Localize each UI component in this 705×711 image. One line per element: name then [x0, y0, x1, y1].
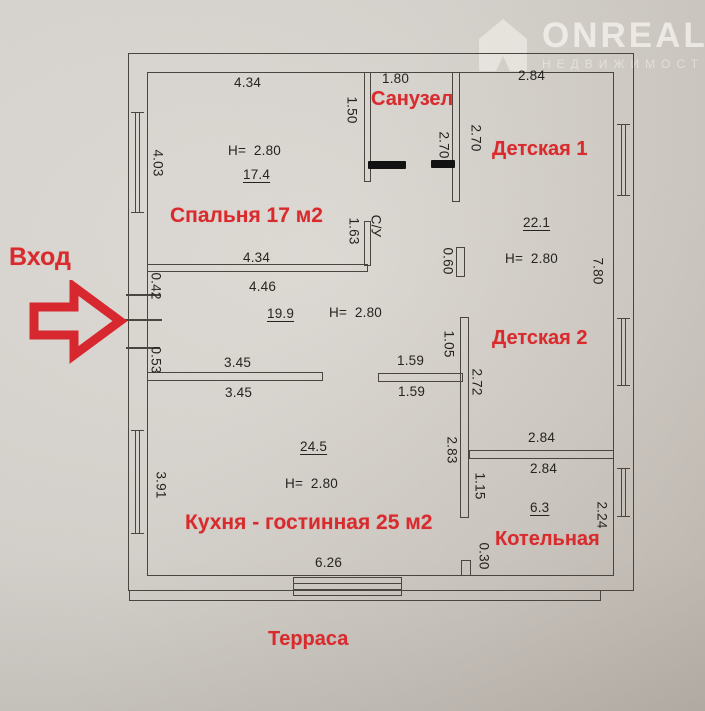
dim-label: 3.91	[154, 471, 169, 498]
dim-label: 0.42	[149, 272, 164, 299]
dim-label: 4.34	[234, 75, 261, 90]
dim-label: 2.70	[437, 131, 452, 158]
room-label-kitchen: Кухня - гостинная 25 м2	[185, 511, 432, 535]
dim-label: 1.80	[382, 71, 409, 86]
dim-label: 2.24	[595, 501, 610, 528]
watermark-brand: ONREALT	[542, 18, 705, 53]
entrance-label: Вход	[9, 243, 71, 272]
wall-kids2-west	[460, 317, 469, 518]
window-kitchen-left	[131, 430, 144, 534]
room-label-kids1: Детская 1	[492, 138, 588, 161]
height-label-kitchen: H= 2.80	[285, 476, 338, 491]
dim-label: 4.46	[249, 279, 276, 294]
dim-label: 0.53	[149, 346, 164, 373]
wall-bedroom-south	[147, 264, 368, 272]
door-mark-left	[368, 161, 406, 169]
area-label-hall: 19.9	[267, 306, 294, 321]
dim-label: 2.84	[528, 430, 555, 445]
dim-label: 2.70	[469, 124, 484, 151]
wall-boiler-north	[469, 450, 614, 459]
dim-label: 1.50	[345, 96, 360, 123]
wall-kitchen-north-left	[147, 372, 323, 381]
wall-stub-060	[456, 247, 465, 277]
dim-label: 0.30	[477, 542, 492, 569]
dim-label: 2.72	[470, 368, 485, 395]
room-label-bedroom: Спальня 17 м2	[170, 204, 323, 228]
dim-label: 7.80	[591, 257, 606, 284]
dim-label: 0.60	[441, 247, 456, 274]
wall-kitchen-north-right	[378, 373, 463, 382]
floorplan-photo: ONREALT НЕДВИЖИМОСТЬ Санузел Детская 1 С…	[0, 0, 705, 711]
area-label-kitchen: 24.5	[300, 439, 327, 454]
area-label-kids1: 22.1	[523, 215, 550, 230]
dim-label: 2.84	[530, 461, 557, 476]
window-kids2-right	[617, 318, 630, 386]
room-label-boiler: Котельная	[495, 528, 600, 551]
dim-label: 4.03	[151, 149, 166, 176]
height-label-hall: H= 2.80	[329, 305, 382, 320]
door-mark-right	[431, 160, 455, 168]
window-boiler-right	[617, 468, 630, 517]
height-label-bedroom: H= 2.80	[228, 143, 281, 158]
su-abbrev-label: С/У	[369, 215, 384, 238]
height-label-kids1: H= 2.80	[505, 251, 558, 266]
dim-label: 3.45	[225, 385, 252, 400]
dim-label: 1.63	[347, 217, 362, 244]
dim-label: 1.59	[398, 384, 425, 399]
terrace-door-window	[293, 577, 402, 596]
dim-label: 1.15	[473, 472, 488, 499]
room-label-bathroom: Санузел	[371, 88, 453, 111]
window-kids1-right	[617, 124, 630, 196]
dim-label: 3.45	[224, 355, 251, 370]
room-label-terrace: Терраса	[268, 628, 348, 651]
dim-label: 2.84	[518, 68, 545, 83]
room-label-kids2: Детская 2	[492, 327, 588, 350]
window-bedroom-left	[131, 112, 144, 213]
entrance-arrow-icon	[28, 280, 128, 364]
dim-label: 2.83	[445, 436, 460, 463]
dim-label: 1.59	[397, 353, 424, 368]
area-label-bedroom: 17.4	[243, 167, 270, 182]
dim-label: 1.05	[442, 330, 457, 357]
wall-stub-030	[461, 560, 471, 576]
dim-label: 6.26	[315, 555, 342, 570]
dim-label: 4.34	[243, 250, 270, 265]
area-label-boiler: 6.3	[530, 500, 549, 515]
